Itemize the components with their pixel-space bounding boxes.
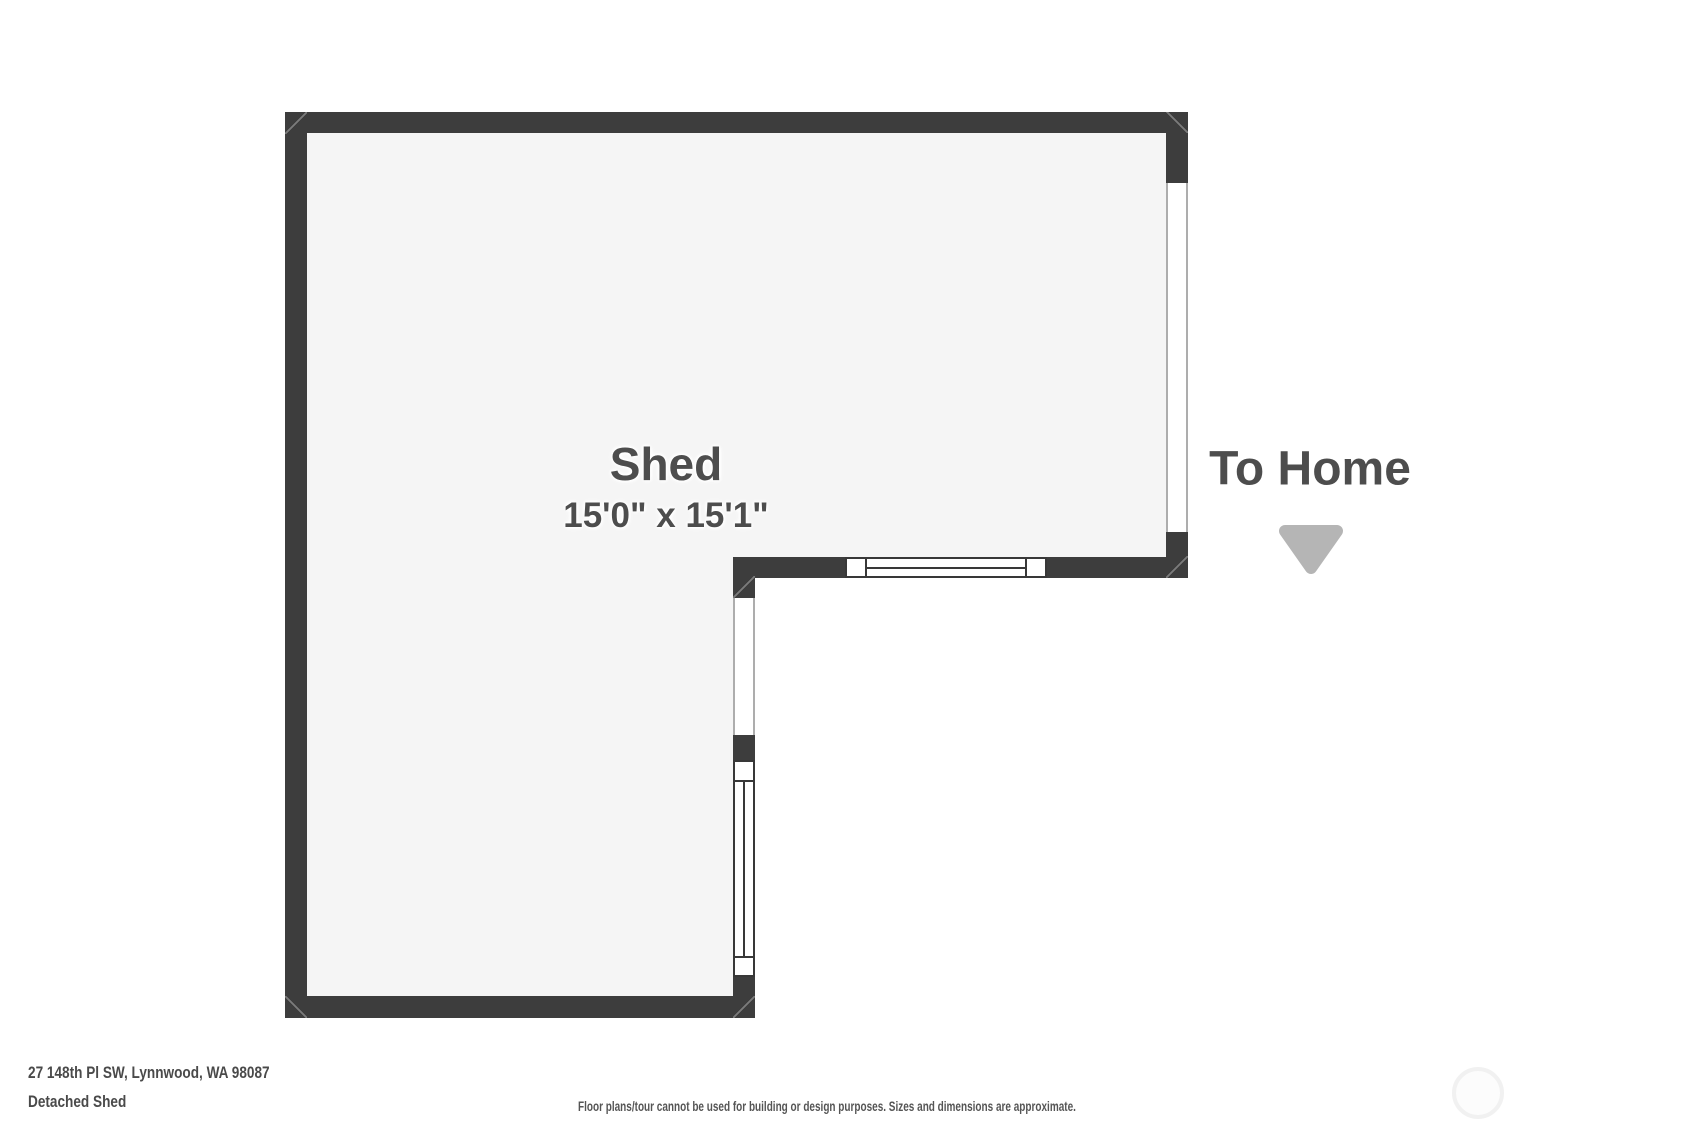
room-name-label: Shed: [610, 437, 722, 491]
wall-notch-middle: [733, 735, 755, 760]
window-symbol-horizontal: [845, 557, 1047, 578]
shed-floor-lower: [307, 133, 733, 998]
plan-name-text: Detached Shed: [28, 1092, 126, 1112]
window-pane-line: [867, 567, 1025, 569]
doorway-opening: [733, 598, 755, 735]
address-text: 27 148th Pl SW, Lynnwood, WA 98087: [28, 1063, 270, 1083]
floor-plan-canvas: Shed 15'0" x 15'1" To Home 27 148th Pl S…: [0, 0, 1697, 1131]
room-dimensions-label: 15'0" x 15'1": [563, 496, 769, 536]
to-home-arrow-icon: [1275, 523, 1347, 575]
watermark-circle-icon: [1452, 1067, 1504, 1119]
wall-notch-upper: [733, 557, 755, 598]
opening-to-home: [1166, 183, 1188, 532]
window-frame-separator: [1025, 559, 1027, 576]
wall-top: [285, 112, 1188, 133]
wall-bottom-lower-room: [285, 996, 755, 1018]
wall-right-upper: [1166, 112, 1188, 183]
to-home-label: To Home: [1209, 442, 1411, 497]
window-symbol-vertical: [733, 760, 755, 977]
window-pane-line: [743, 782, 745, 956]
window-frame-separator: [735, 956, 753, 958]
disclaimer-text: Floor plans/tour cannot be used for buil…: [578, 1099, 1076, 1114]
wall-left: [285, 112, 307, 1018]
